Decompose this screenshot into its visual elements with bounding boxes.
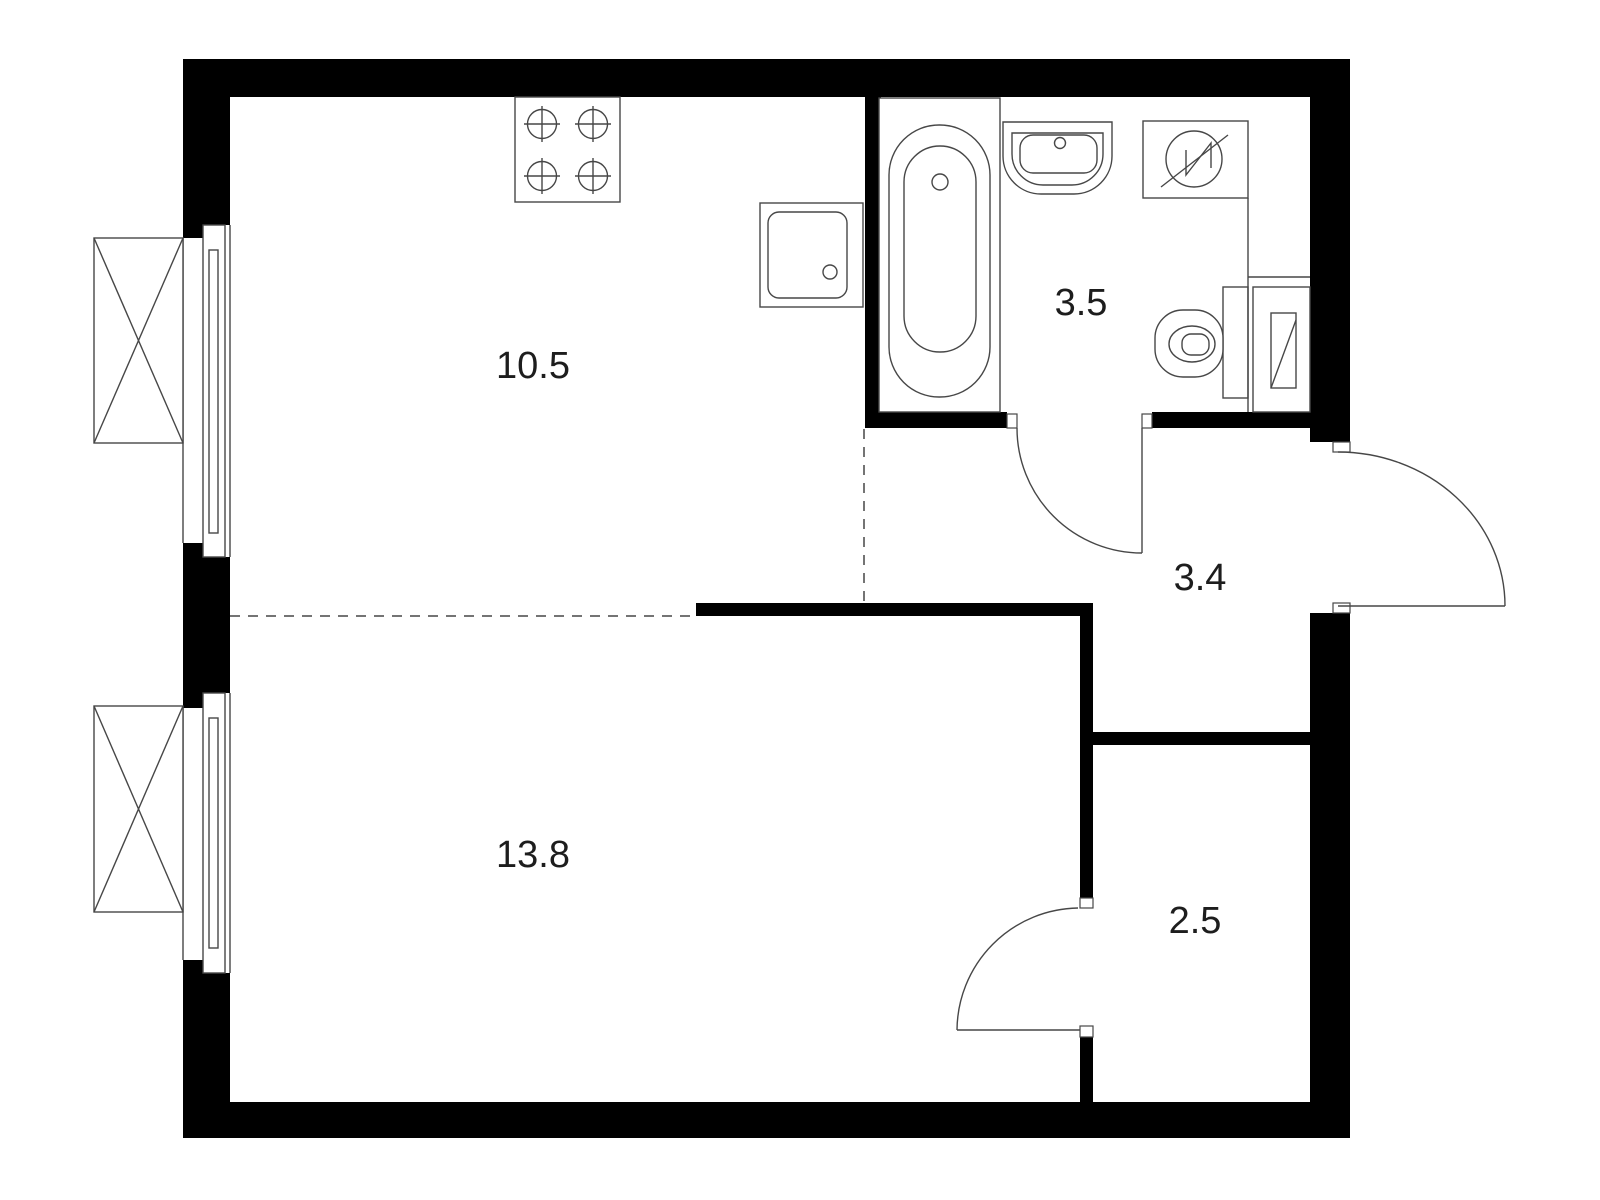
room-label-bathroom: 3.5	[1055, 282, 1108, 324]
door-jamb	[1080, 1026, 1093, 1037]
bathtub-icon	[879, 98, 1000, 412]
room-label-storage: 2.5	[1169, 900, 1222, 942]
room-label-hallway: 3.4	[1174, 557, 1227, 599]
stove-body	[515, 97, 620, 202]
toilet-icon	[1155, 287, 1248, 398]
door-swing-arc	[1017, 428, 1142, 553]
toilet-tank	[1223, 287, 1248, 398]
door-storage	[957, 898, 1093, 1037]
window-living	[183, 693, 230, 973]
wall-living-hall	[696, 603, 1093, 616]
wall-left-middle	[183, 557, 230, 693]
wall-left-top	[183, 59, 230, 225]
door-jamb	[1142, 414, 1152, 428]
washbasin-icon	[1003, 122, 1112, 194]
window-glass	[209, 718, 218, 948]
door-bathroom	[1007, 414, 1152, 553]
wall-window2-stub-top	[183, 693, 203, 708]
zone-boundaries	[230, 429, 864, 616]
room-label-living-room: 13.8	[496, 834, 570, 876]
wall-hall-storage-vertical	[1080, 616, 1093, 898]
bathtub-body	[879, 98, 1000, 412]
wall-window2-stub-bottom	[183, 960, 203, 973]
wall-bathroom-bottom-right	[1152, 412, 1310, 428]
wall-right-top	[1310, 97, 1350, 442]
wall-window1-stub-top	[183, 225, 203, 238]
window-kitchen	[183, 225, 230, 557]
door-jamb	[1333, 603, 1350, 613]
wall-bathroom-bottom-left	[865, 412, 1007, 428]
door-entry	[1333, 442, 1505, 613]
door-swing-arc	[1338, 452, 1505, 606]
door-jamb	[1080, 898, 1093, 908]
wall-storage-top	[1093, 732, 1310, 745]
room-label-kitchen: 10.5	[496, 345, 570, 387]
washing-machine-icon	[1143, 121, 1248, 198]
wall-right-bottom	[1310, 613, 1350, 1102]
stove-icon	[515, 97, 620, 202]
wall-storage-door-stub	[1080, 1037, 1093, 1102]
door-jamb	[1007, 414, 1017, 428]
balcony-box-bottom	[94, 706, 183, 912]
door-jamb	[1333, 442, 1350, 452]
balcony-box-top	[94, 238, 183, 443]
water-heater-icon	[1248, 198, 1310, 412]
water-heater-body	[1253, 287, 1310, 412]
kitchen-sink-icon	[760, 203, 863, 307]
toilet-bowl	[1155, 310, 1223, 377]
floor-plan: 10.5 3.5 3.4 13.8 2.5	[0, 0, 1600, 1200]
wall-window1-stub-bottom	[183, 543, 203, 557]
wall-bottom	[183, 1102, 1350, 1138]
door-swing-arc	[957, 908, 1078, 1030]
wall-top	[183, 59, 1350, 97]
window-glass	[209, 250, 218, 533]
